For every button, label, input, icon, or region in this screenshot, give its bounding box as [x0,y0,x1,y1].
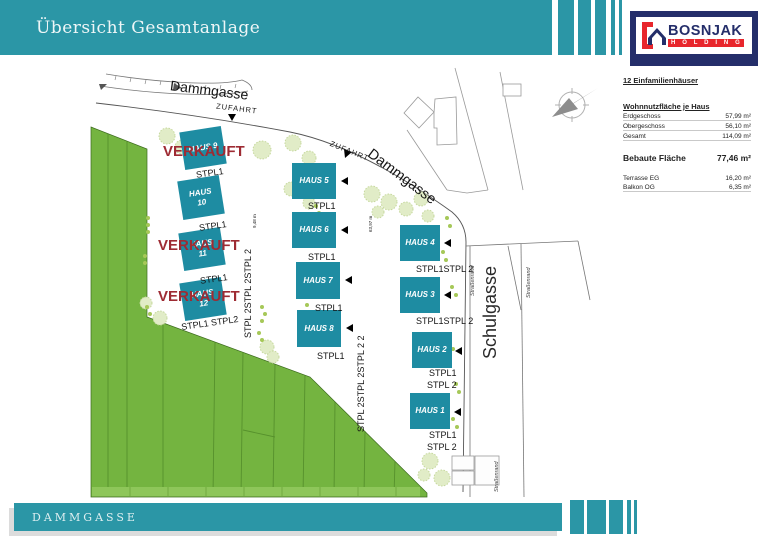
stpl-label: STPL1 [308,201,336,211]
dimension-label: 63,97 m [368,202,373,232]
field-verge [92,487,420,497]
house-arrow [444,291,451,299]
stpl-label: STPL1 [429,368,457,378]
house-box-8: HAUS 8 [297,310,341,347]
house-arrow [345,276,352,284]
house-box-10: HAUS 10 [177,175,225,220]
site-plan [0,0,770,545]
stpl-label: STPL1 [317,351,345,361]
house-arrow [455,347,462,355]
house-arrow [341,177,348,185]
dimension-label: 9,48 m [252,202,257,228]
stpl-label: STPL 2 [427,442,457,452]
house-box-5: HAUS 5 [292,163,336,199]
house-label: HAUS 2 [417,345,446,355]
house-label: HAUS 7 [303,276,332,286]
north-arrow-icon [552,88,598,122]
sold-overlay-haus9: VERKAUFT [163,143,245,160]
house-label: HAUS 6 [299,225,328,235]
street-label-schulgasse: Schulgasse [480,225,501,400]
house-arrow [341,226,348,234]
house-label: HAUS 5 [299,176,328,186]
house-arrow [346,324,353,332]
slide: Übersicht Gesamtanlage BOSNJAK H O L D I… [0,0,770,545]
roadside-label: Straßenrand [526,252,532,298]
stpl-label: STPL 2 [427,380,457,390]
stpl-column-middle: STPL 2STPL 2STPL 2 2 [356,214,366,432]
stpl-label: STPL1 [308,252,336,262]
house-box-1: HAUS 1 [410,393,450,429]
existing-buildings [404,68,523,193]
house-label: HAUS 3 [405,290,434,300]
house-box-3: HAUS 3 [400,277,440,313]
house-box-7: HAUS 7 [296,262,340,299]
green-field [91,127,427,497]
stpl-label: STPL1STPL 2 [416,316,473,326]
house-arrow [454,408,461,416]
house-label: HAUS 1 [415,406,444,416]
stpl-label: STPL1STPL 2 [416,264,473,274]
stpl-column-left: STPL 2STPL 2STPL 2 [243,160,253,338]
house-label: HAUS 10 [185,185,218,209]
house-box-6: HAUS 6 [292,212,336,248]
stpl-label: STPL1 [429,430,457,440]
house-arrow [444,239,451,247]
bottom-buildings [452,456,499,485]
house-label: HAUS 8 [304,324,333,334]
house-box-4: HAUS 4 [400,225,440,261]
roadside-label: Straßenrand [494,448,500,492]
house-box-2: HAUS 2 [412,332,452,368]
sold-overlay-haus12: VERKAUFT [158,288,240,305]
stpl-label: STPL1 [315,303,343,313]
house-label: HAUS 4 [405,238,434,248]
sold-overlay-haus11: VERKAUFT [158,237,240,254]
